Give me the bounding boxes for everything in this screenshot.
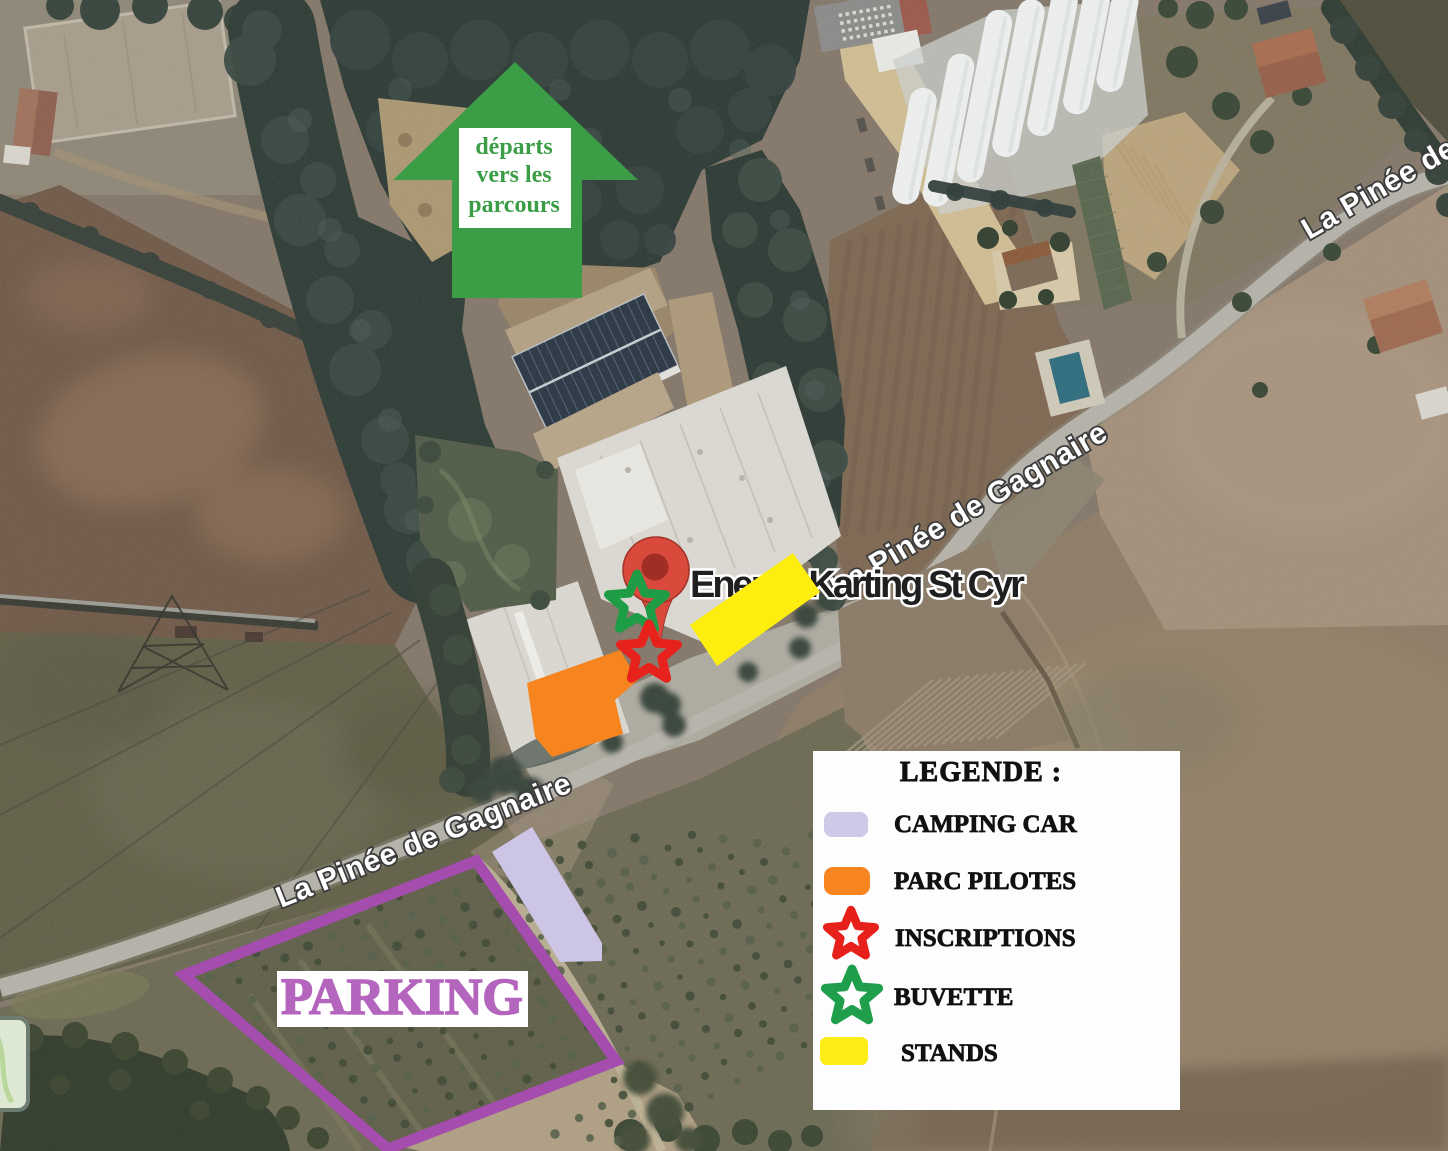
svg-text:STANDS: STANDS <box>901 1040 998 1067</box>
svg-text:vers les: vers les <box>476 162 551 188</box>
svg-text:INSCRIPTIONS: INSCRIPTIONS <box>895 925 1076 952</box>
svg-text:PARKING: PARKING <box>281 969 523 1026</box>
svg-text:CAMPING CAR: CAMPING CAR <box>894 811 1078 838</box>
svg-text:PARC PILOTES: PARC PILOTES <box>894 868 1076 895</box>
svg-text:BUVETTE: BUVETTE <box>894 984 1013 1011</box>
svg-text:départs: départs <box>475 134 552 160</box>
svg-text:LEGENDE :: LEGENDE : <box>900 757 1062 788</box>
svg-text:parcours: parcours <box>468 192 560 218</box>
